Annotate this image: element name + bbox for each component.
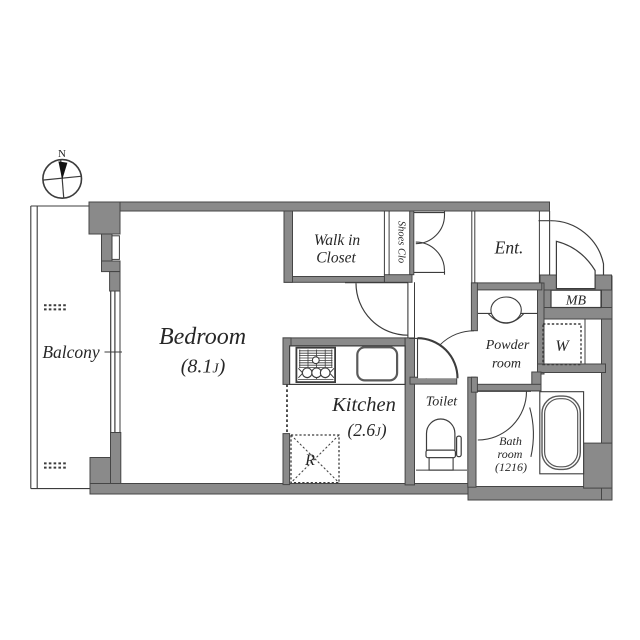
- svg-text:W: W: [555, 338, 570, 355]
- svg-text:Kitchen: Kitchen: [331, 394, 396, 416]
- svg-text:(8.1J): (8.1J): [181, 356, 226, 378]
- svg-text:Closet: Closet: [316, 250, 356, 267]
- svg-text:MB: MB: [565, 294, 587, 309]
- svg-text:(1216): (1216): [495, 460, 527, 474]
- svg-text:Shoes Clo: Shoes Clo: [396, 221, 407, 263]
- svg-text:Balcony: Balcony: [42, 342, 100, 362]
- svg-text:room: room: [492, 357, 521, 372]
- svg-text:R: R: [304, 452, 315, 469]
- svg-text:Bedroom: Bedroom: [159, 324, 246, 350]
- svg-text:Bath: Bath: [499, 434, 522, 448]
- svg-text:(2.6J): (2.6J): [347, 420, 386, 440]
- svg-text:Powder: Powder: [485, 338, 530, 353]
- svg-text:Toilet: Toilet: [426, 395, 458, 410]
- svg-text:Ent.: Ent.: [494, 238, 524, 258]
- svg-text:Walk in: Walk in: [314, 232, 361, 249]
- svg-text:N: N: [58, 148, 66, 160]
- svg-text:room: room: [498, 447, 523, 461]
